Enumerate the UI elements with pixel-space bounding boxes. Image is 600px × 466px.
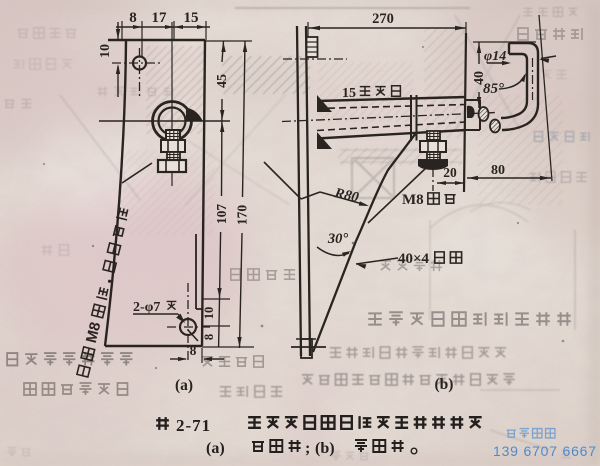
svg-text:10: 10 [98,44,113,58]
svg-text:20: 20 [443,165,457,180]
svg-text:40×4: 40×4 [398,251,430,267]
svg-text:15: 15 [184,10,199,26]
svg-text:(a): (a) [206,440,225,457]
svg-text:270: 270 [372,11,394,27]
svg-text:139 6707 6667: 139 6707 6667 [493,443,597,459]
svg-text:10: 10 [202,307,216,320]
svg-text:80: 80 [491,163,505,178]
svg-text:17: 17 [152,10,168,26]
svg-text:8: 8 [190,343,197,358]
svg-text:2-71: 2-71 [176,416,211,435]
svg-text:;: ; [305,440,310,457]
svg-text:107: 107 [214,204,229,225]
svg-text:8: 8 [202,334,216,340]
svg-text:(b): (b) [315,440,335,457]
svg-text:30°: 30° [327,231,349,247]
svg-text:45: 45 [215,74,230,88]
svg-text:170: 170 [235,205,250,226]
svg-text:15: 15 [342,86,356,101]
svg-text:(a): (a) [175,377,193,394]
svg-text:(b): (b) [435,376,454,393]
svg-text:2-φ7: 2-φ7 [133,300,160,315]
svg-text:M8: M8 [402,192,424,208]
svg-text:8: 8 [129,10,137,26]
